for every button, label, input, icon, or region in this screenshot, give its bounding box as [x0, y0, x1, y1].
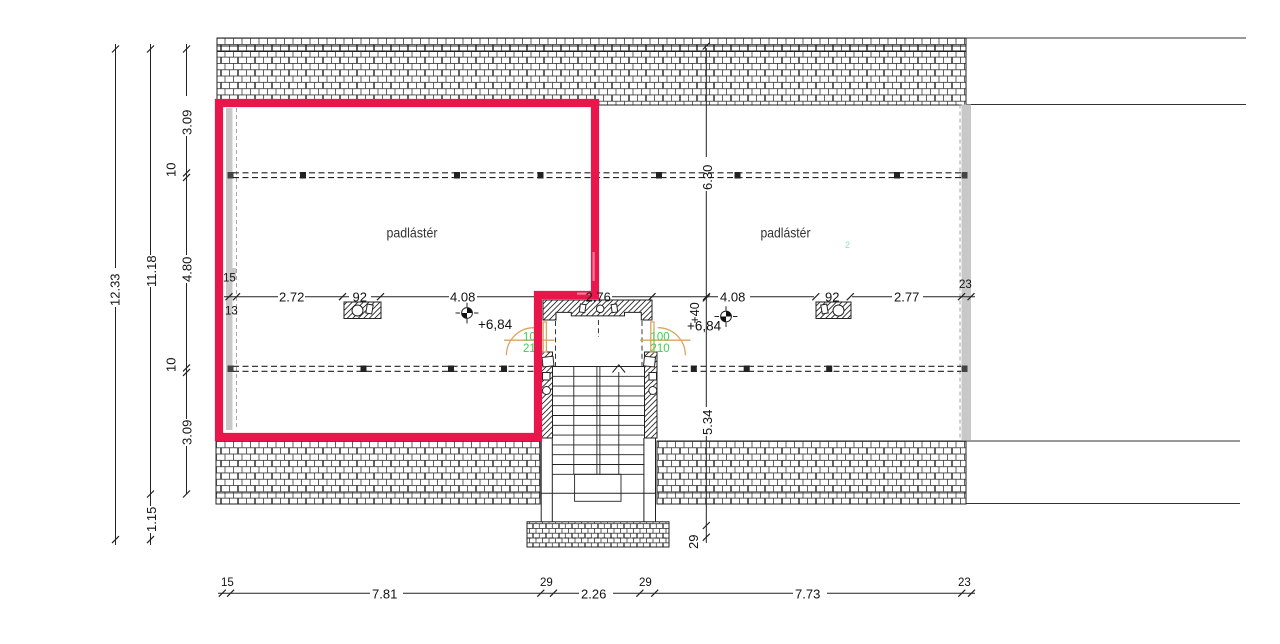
svg-text:4.08: 4.08: [720, 290, 745, 305]
svg-text:15: 15: [223, 273, 236, 285]
svg-text:100: 100: [651, 332, 670, 344]
svg-text:7.81: 7.81: [372, 587, 397, 602]
svg-text:10: 10: [164, 163, 179, 177]
svg-text:padlástér: padlástér: [387, 226, 438, 241]
svg-text:7.73: 7.73: [795, 587, 820, 602]
svg-text:2: 2: [845, 240, 850, 250]
svg-text:+6,84: +6,84: [478, 317, 513, 332]
svg-text:4.80: 4.80: [180, 257, 195, 282]
svg-text:6.30: 6.30: [700, 165, 715, 190]
svg-text:1.15: 1.15: [144, 507, 159, 532]
svg-text:12.33: 12.33: [108, 273, 123, 306]
svg-text:2.26: 2.26: [581, 587, 606, 602]
svg-text:92: 92: [353, 290, 367, 305]
svg-text:11.18: 11.18: [144, 255, 159, 287]
svg-text:2.77: 2.77: [894, 290, 919, 305]
svg-text:4.08: 4.08: [450, 290, 475, 305]
svg-text:padlástér: padlástér: [761, 226, 811, 241]
svg-text:29: 29: [639, 577, 652, 589]
svg-text:29: 29: [686, 535, 701, 549]
svg-text:23: 23: [958, 577, 971, 589]
svg-text:3.09: 3.09: [180, 420, 195, 445]
svg-text:5.34: 5.34: [700, 410, 715, 435]
svg-text:+40: +40: [688, 302, 702, 323]
svg-text:29: 29: [540, 577, 553, 589]
svg-text:13: 13: [225, 306, 238, 318]
svg-text:2.72: 2.72: [279, 290, 304, 305]
svg-text:2.76: 2.76: [586, 290, 611, 305]
svg-text:10: 10: [164, 358, 179, 372]
svg-text:92: 92: [825, 290, 839, 305]
svg-text:210: 210: [651, 343, 670, 355]
svg-text:23: 23: [959, 279, 972, 291]
svg-text:15: 15: [221, 577, 234, 589]
svg-text:3.09: 3.09: [180, 110, 195, 135]
